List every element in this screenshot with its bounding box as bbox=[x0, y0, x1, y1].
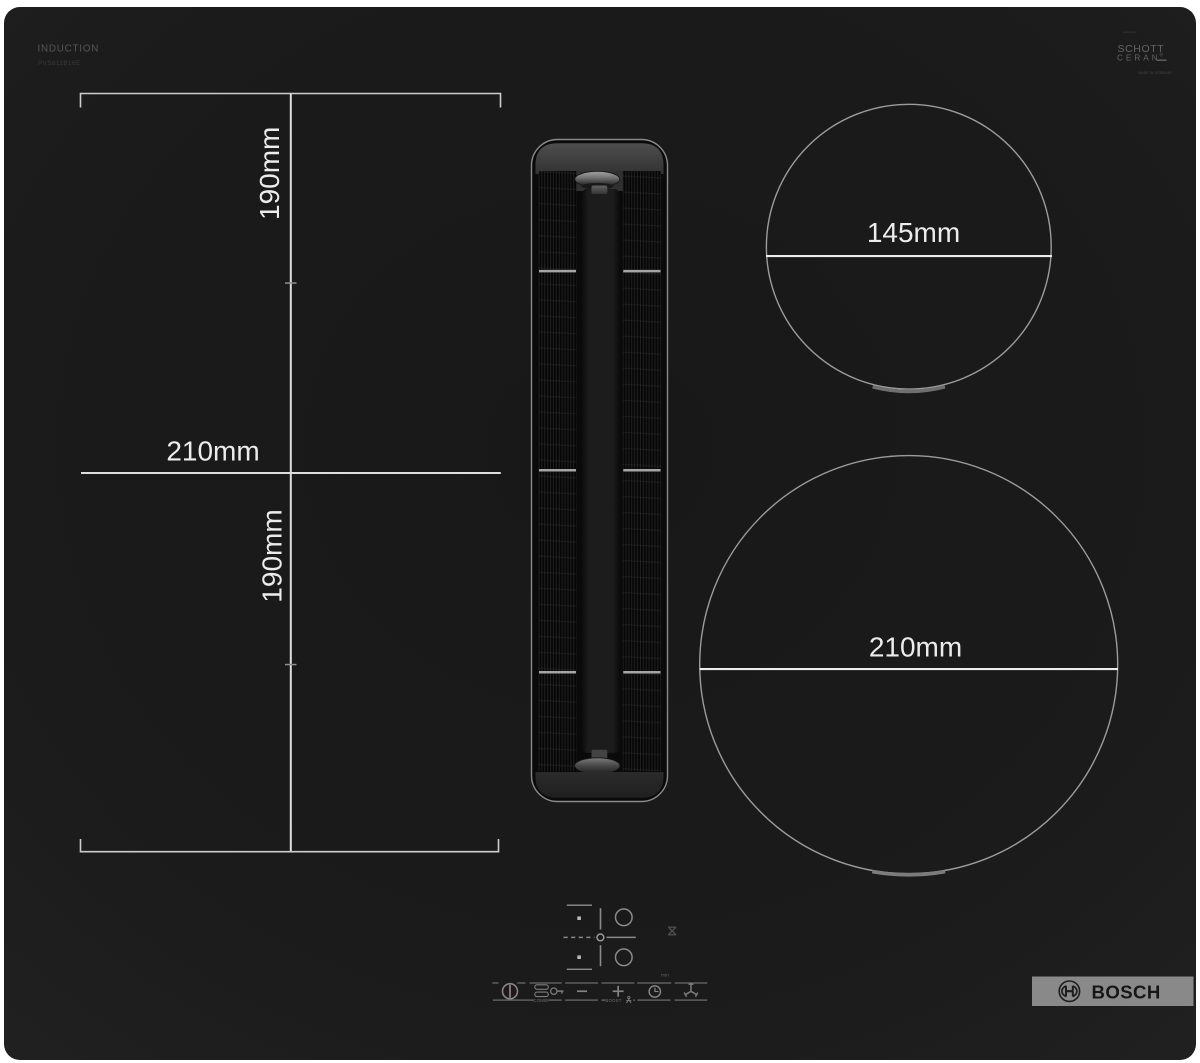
svg-text:®: ® bbox=[1160, 52, 1164, 59]
svg-text:145mm: 145mm bbox=[867, 217, 960, 248]
svg-text:190mm: 190mm bbox=[256, 509, 287, 602]
svg-text:210mm: 210mm bbox=[166, 436, 259, 467]
svg-text:COMBI: COMBI bbox=[533, 998, 548, 1003]
svg-text:MADE IN GERMANY: MADE IN GERMANY bbox=[1139, 71, 1174, 75]
svg-text:min: min bbox=[661, 973, 669, 979]
svg-text:210mm: 210mm bbox=[869, 632, 962, 663]
svg-text:190mm: 190mm bbox=[254, 127, 285, 220]
svg-text:PVS611B16E: PVS611B16E bbox=[38, 60, 81, 67]
svg-text:BOSCH: BOSCH bbox=[1092, 981, 1161, 1002]
svg-text:CERAN: CERAN bbox=[1117, 54, 1161, 63]
svg-text:INDUCTION: INDUCTION bbox=[38, 44, 100, 55]
svg-text:BOOST: BOOST bbox=[605, 998, 621, 1003]
